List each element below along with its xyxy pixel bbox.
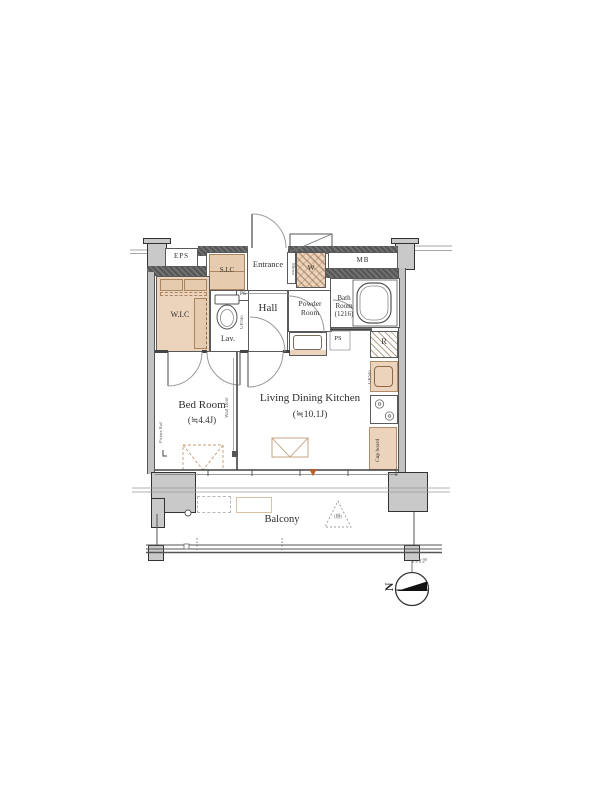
bedroom-floor-hatch <box>183 445 223 470</box>
column-top-right-cap <box>391 238 419 244</box>
column-top-right <box>395 240 415 270</box>
wic-door-arc <box>168 352 202 386</box>
label-bedroom: Bed Room <box>172 399 232 412</box>
label-wic: W.I.C <box>158 310 202 319</box>
entrance-door-arc <box>252 214 286 248</box>
wic-hanger-pipe <box>160 292 207 296</box>
label-picture-rail: Picture Rail <box>158 412 167 452</box>
rail-post <box>184 544 189 549</box>
label-mb: MB <box>328 256 398 264</box>
partition-end-post <box>232 451 238 457</box>
washbasin-bowl <box>293 335 322 350</box>
label-lav-storage: UP.Sto <box>240 306 249 338</box>
label-eps: EPS <box>166 252 197 260</box>
wic-shelf-2 <box>184 279 207 291</box>
column-top-left-cap <box>143 238 171 244</box>
label-bath: Bath Room (1216) <box>331 294 357 318</box>
label-cupboard: Cup board <box>375 432 385 468</box>
label-balcony: Balcony <box>256 514 308 526</box>
floor-plan-canvas: EPS S.I.C Entrance Mirror W MB W.I.C PS … <box>0 0 600 800</box>
label-wall-door: Wall Door <box>225 390 235 426</box>
ldk-table <box>272 438 308 457</box>
wic-shelf-1 <box>160 279 183 291</box>
label-sic: S.I.C <box>206 266 248 274</box>
balcony-hatch-triangle <box>325 501 351 527</box>
label-kitchen-storage: UP.Sto <box>368 363 378 391</box>
washbasin-counter <box>290 350 326 355</box>
balcony-item-dashed <box>197 496 231 513</box>
column-bottom-left <box>148 545 164 561</box>
wall-top-left <box>147 266 210 276</box>
label-mirror: Mirror <box>287 254 296 284</box>
label-hall: Hall <box>250 302 286 315</box>
label-ldk: Living Dining Kitchen <box>258 392 362 405</box>
label-ps-mid: PS <box>330 335 346 342</box>
ldk-table-diag2 <box>290 438 308 457</box>
label-compass-n: N <box>383 579 397 595</box>
stove-unit <box>370 395 398 424</box>
orientation-marker <box>309 469 317 476</box>
bedroom-hatch-diag2 <box>203 445 223 470</box>
column-mid-left-leg <box>151 498 165 528</box>
label-hatch-note: (樋) <box>328 515 348 521</box>
wic-shelf-tall <box>194 298 207 349</box>
label-bedroom-size: (≒4.4J) <box>176 415 228 425</box>
ldk-door-arc <box>248 352 283 387</box>
bedroom-door-arc <box>207 352 240 385</box>
wall-mb-bottom <box>326 268 400 278</box>
balcony-item-outline <box>236 497 272 513</box>
label-fridge: R <box>370 337 398 346</box>
room-hall <box>248 290 288 352</box>
label-entrance: Entrance <box>246 260 290 270</box>
label-ldk-size: (≒10.1J) <box>278 410 342 421</box>
label-washer: W <box>296 264 326 273</box>
label-dim-note: 6-90 <box>413 557 433 562</box>
ldk-table-diag1 <box>272 438 290 457</box>
label-lav: Lav. <box>214 334 242 343</box>
label-powder: Powder Room <box>288 300 332 317</box>
compass-circle <box>396 573 429 606</box>
label-ps-top: PS <box>236 291 250 297</box>
bedroom-hatch-diag1 <box>183 445 203 470</box>
wall-left <box>147 272 155 474</box>
compass-needle <box>397 582 427 592</box>
column-mid-right <box>388 472 428 512</box>
